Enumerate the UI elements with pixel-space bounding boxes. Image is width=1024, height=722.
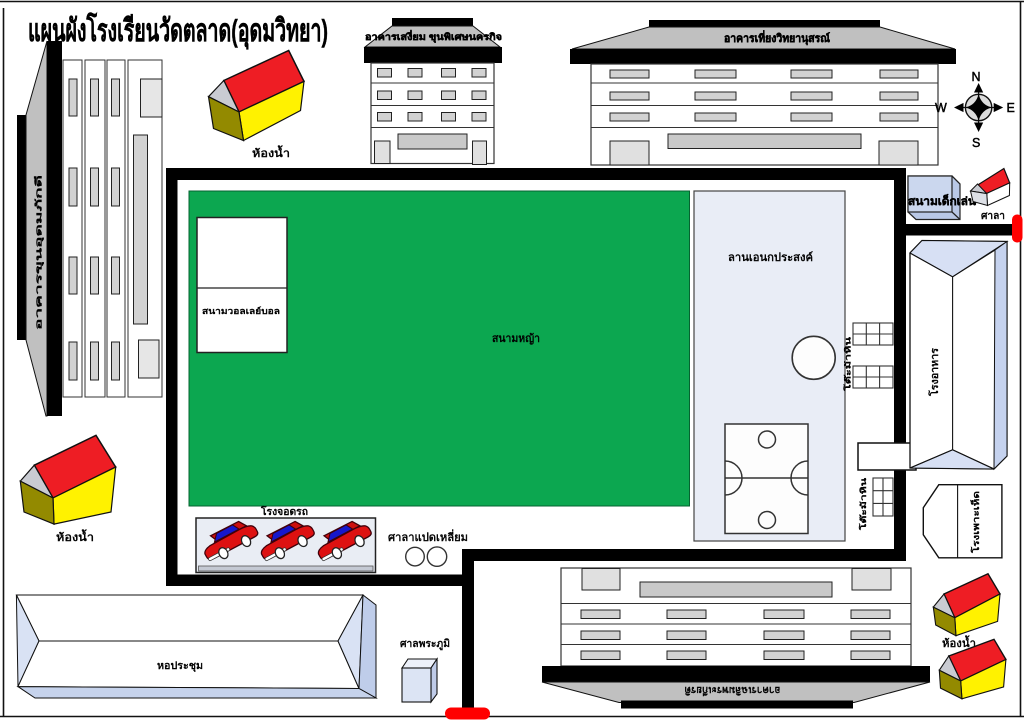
svg-text:โต๊ะม้าหิน: โต๊ะม้าหิน [859,478,868,530]
svg-text:สนามวอลเลย์บอล: สนามวอลเลย์บอล [202,306,280,316]
svg-text:E: E [1007,101,1015,115]
svg-text:W: W [935,101,947,115]
svg-text:โต๊ะม้าหิน: โต๊ะม้าหิน [844,337,853,391]
svg-text:ศาลพระภูมิ: ศาลพระภูมิ [400,638,450,650]
svg-text:อาคารเฉลิมพระเกียรติ: อาคารเฉลิมพระเกียรติ [684,684,780,697]
svg-text:โรงอาหาร: โรงอาหาร [928,348,941,396]
svg-text:สนามเด็กเล่น: สนามเด็กเล่น [908,194,977,208]
svg-text:โรงเพาะเห็ด: โรงเพาะเห็ด [969,491,981,553]
svg-text:ลานเอนกประสงค์: ลานเอนกประสงค์ [728,251,813,264]
svg-text:ศาลา: ศาลา [981,211,1005,222]
svg-text:ห้องน้ำ: ห้องน้ำ [56,529,94,544]
svg-text:สนามหญ้า: สนามหญ้า [492,333,540,345]
svg-text:แผนผังโรงเรียนวัดตลาด(อุดมวิทย: แผนผังโรงเรียนวัดตลาด(อุดมวิทยา) [28,12,328,50]
svg-text:ห้องน้ำ: ห้องน้ำ [252,145,290,160]
svg-text:อาคารเสงี่ยม ขุนพิเศษนครกิจ: อาคารเสงี่ยม ขุนพิเศษนครกิจ [365,29,502,43]
svg-text:อาคารเที่ยงวิทยานุสรณ์: อาคารเที่ยงวิทยานุสรณ์ [724,30,831,46]
svg-text:อาคารขุนอุดมภักดี: อาคารขุนอุดมภักดี [34,175,45,330]
svg-text:หอประชุม: หอประชุม [157,660,203,672]
svg-text:ศาลาแปดเหลี่ยม: ศาลาแปดเหลี่ยม [388,529,468,544]
svg-text:N: N [972,70,981,84]
svg-text:โรงจอดรถ: โรงจอดรถ [261,505,308,518]
svg-text:S: S [972,136,980,150]
